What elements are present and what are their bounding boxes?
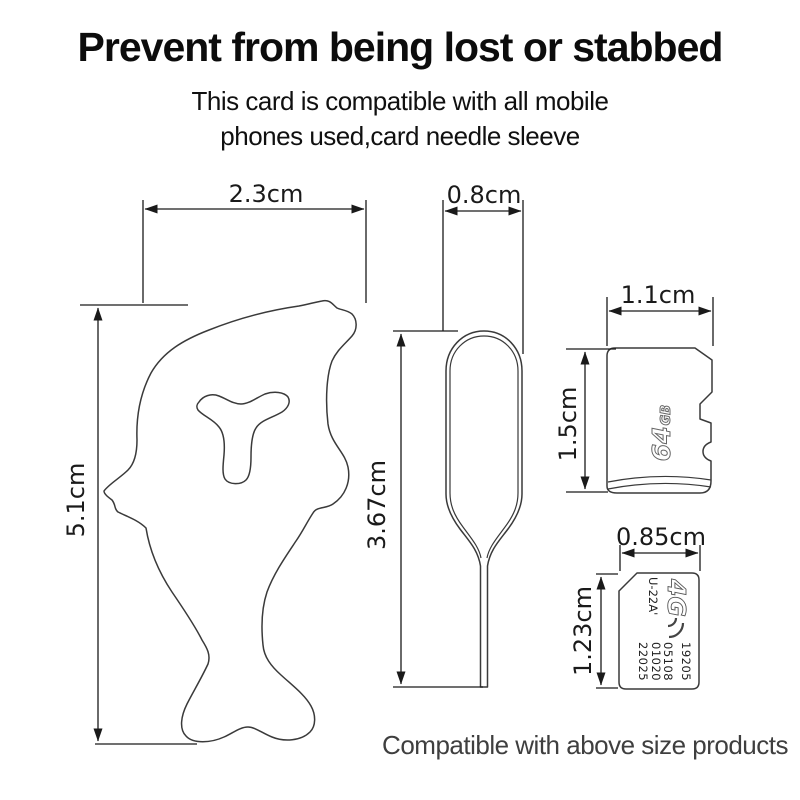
dim-sd-width: 1.1cm <box>607 281 713 346</box>
sim-model-label: U-22A' <box>646 577 660 615</box>
sleeve-height-label: 5.1cm <box>62 463 90 538</box>
sim-serial-line: 19205 <box>679 642 693 681</box>
dimension-diagram: 64GB 4G U-22A' 19205 05108 01020 22025 2… <box>0 0 800 800</box>
signal-waves-icon <box>668 618 683 637</box>
eject-pin-inner-line <box>450 336 518 558</box>
sd-capacity-label: 64GB <box>647 405 676 461</box>
sd-width-label: 1.1cm <box>621 281 696 309</box>
dim-sim-height: 1.23cm <box>569 574 618 688</box>
sleeve-width-label: 2.3cm <box>229 180 304 208</box>
sim-width-label: 0.85cm <box>616 523 706 551</box>
eject-pin-outline <box>446 331 522 687</box>
sim-serial-line: 01020 <box>649 642 663 681</box>
dim-pin-height: 3.67cm <box>363 331 483 687</box>
dolphin-sleeve <box>104 301 356 742</box>
pin-width-label: 0.8cm <box>447 181 522 209</box>
pin-height-label: 3.67cm <box>363 460 391 550</box>
sim-serial-line: 22025 <box>636 642 650 681</box>
eject-pin <box>446 331 522 687</box>
sim-height-label: 1.23cm <box>569 586 597 676</box>
needle-slot-cutout <box>197 392 289 483</box>
sd-card-stripe-lower <box>608 483 711 489</box>
dolphin-outline <box>104 301 356 742</box>
dim-pin-width: 0.8cm <box>443 181 523 354</box>
dim-sleeve-height: 5.1cm <box>62 305 197 744</box>
sim-card: 4G U-22A' 19205 05108 01020 22025 <box>619 573 699 689</box>
dim-sim-width: 0.85cm <box>616 523 706 571</box>
sd-height-label: 1.5cm <box>554 387 582 462</box>
sd-card: 64GB <box>607 348 712 493</box>
dim-sleeve-width: 2.3cm <box>143 180 366 303</box>
sd-card-stripe-upper <box>608 476 711 482</box>
product-infographic: Prevent from being lost or stabbed This … <box>0 0 800 800</box>
footer-note: Compatible with above size products <box>382 730 788 761</box>
sim-4g-logo: 4G <box>662 578 691 617</box>
sim-card-print: 4G U-22A' 19205 05108 01020 22025 <box>636 577 693 681</box>
